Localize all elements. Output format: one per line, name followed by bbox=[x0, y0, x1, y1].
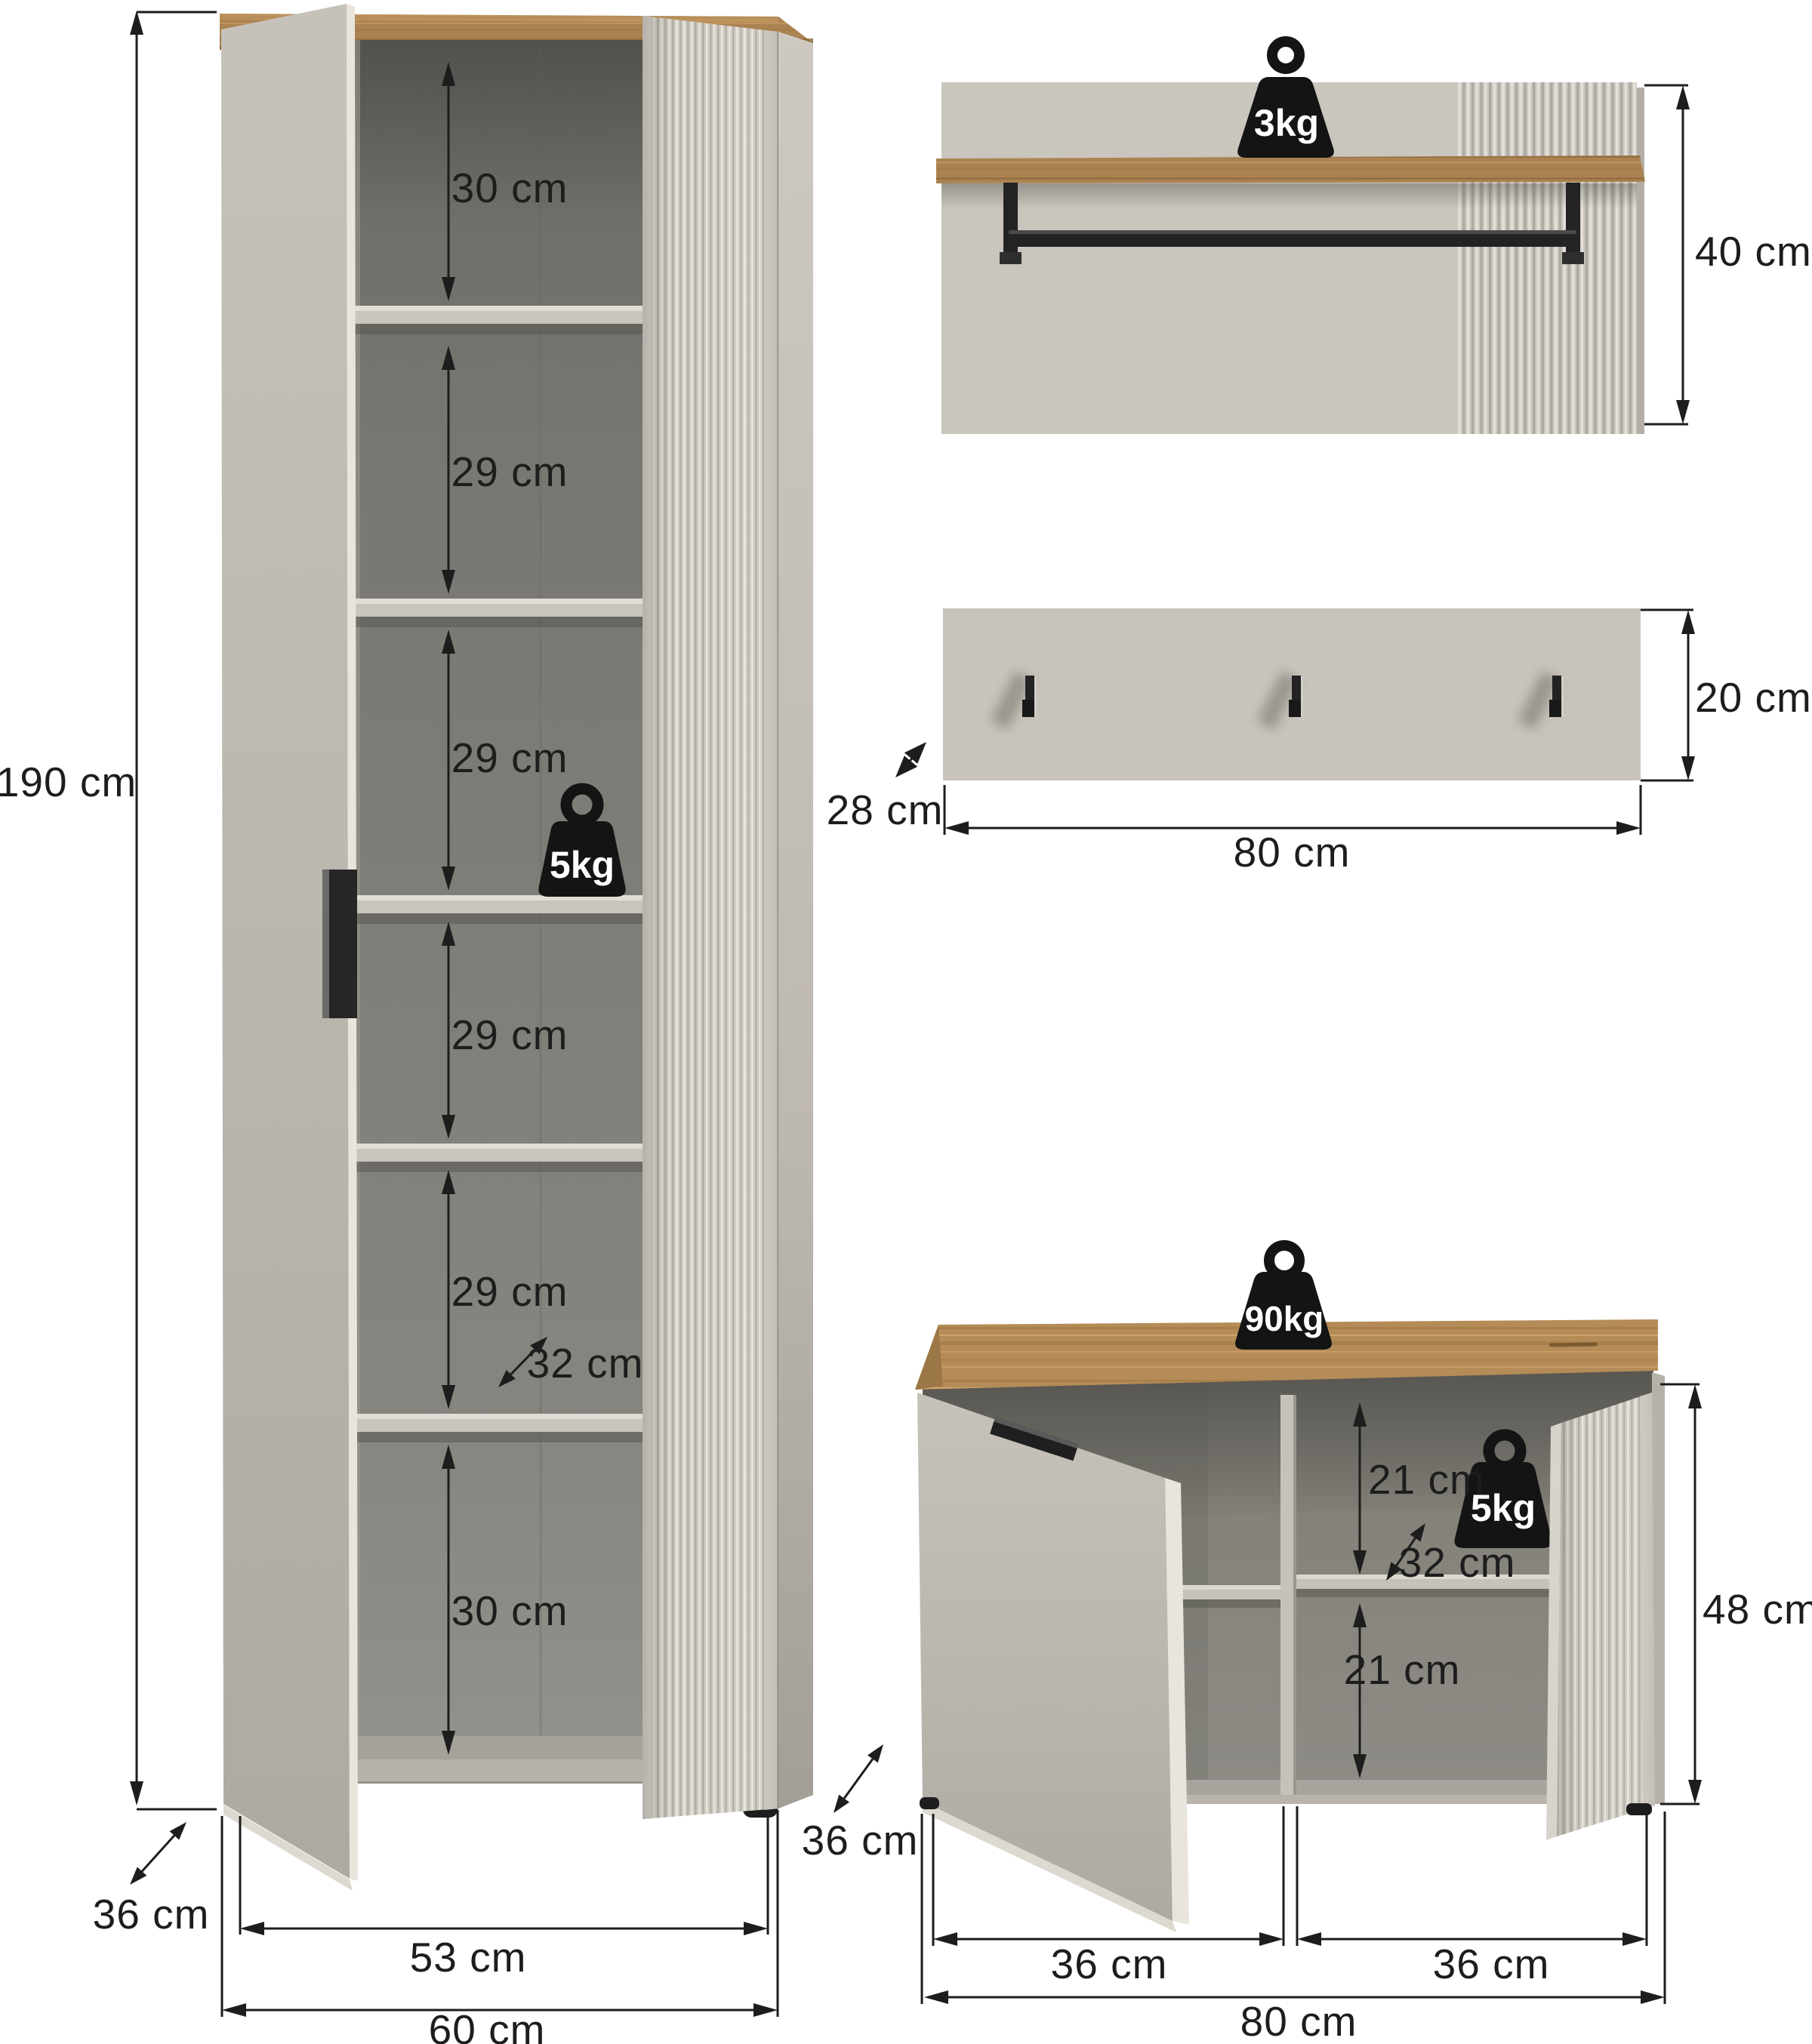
svg-text:20 cm: 20 cm bbox=[1695, 674, 1812, 721]
svg-text:80 cm: 80 cm bbox=[1234, 829, 1351, 876]
svg-text:32 cm: 32 cm bbox=[527, 1340, 644, 1387]
svg-text:36 cm: 36 cm bbox=[1433, 1941, 1550, 1987]
svg-text:21 cm: 21 cm bbox=[1368, 1456, 1485, 1503]
svg-text:5kg: 5kg bbox=[550, 844, 615, 886]
svg-text:30 cm: 30 cm bbox=[451, 1587, 569, 1634]
svg-text:60 cm: 60 cm bbox=[429, 2006, 546, 2044]
svg-text:29 cm: 29 cm bbox=[451, 1268, 569, 1315]
svg-text:21 cm: 21 cm bbox=[1344, 1646, 1461, 1693]
svg-text:80 cm: 80 cm bbox=[1240, 1998, 1357, 2044]
svg-text:90kg: 90kg bbox=[1245, 1299, 1324, 1338]
svg-text:190 cm: 190 cm bbox=[0, 759, 137, 805]
svg-text:40 cm: 40 cm bbox=[1695, 228, 1812, 275]
svg-text:3kg: 3kg bbox=[1254, 102, 1319, 144]
svg-text:36 cm: 36 cm bbox=[1051, 1941, 1168, 1987]
svg-text:29 cm: 29 cm bbox=[451, 734, 569, 781]
svg-text:53 cm: 53 cm bbox=[410, 1934, 527, 1981]
svg-text:29 cm: 29 cm bbox=[451, 1011, 569, 1058]
svg-text:28 cm: 28 cm bbox=[827, 787, 944, 833]
svg-text:29 cm: 29 cm bbox=[451, 448, 569, 495]
svg-text:48 cm: 48 cm bbox=[1703, 1586, 1812, 1633]
svg-text:36 cm: 36 cm bbox=[93, 1891, 210, 1938]
svg-text:36 cm: 36 cm bbox=[802, 1817, 919, 1864]
svg-text:32 cm: 32 cm bbox=[1399, 1539, 1516, 1586]
svg-text:30 cm: 30 cm bbox=[451, 165, 569, 211]
